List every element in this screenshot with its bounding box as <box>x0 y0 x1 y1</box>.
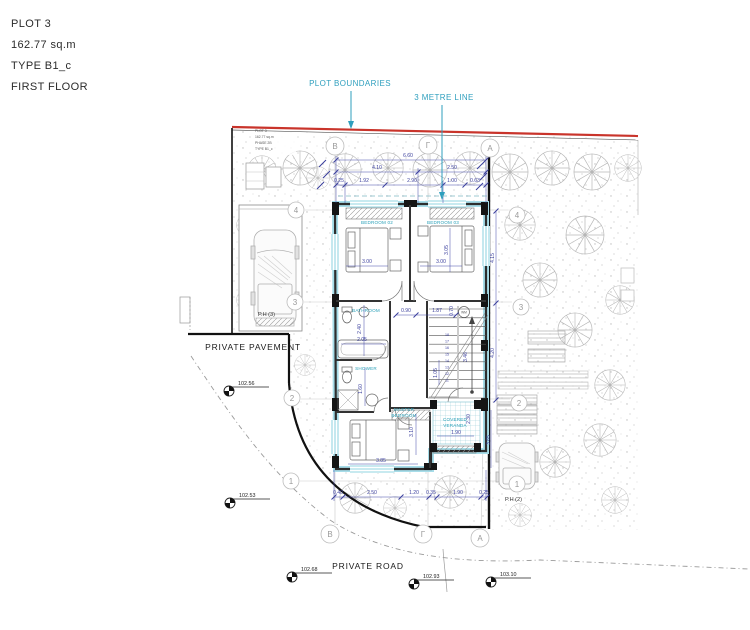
level-road-mid: 102.93 <box>423 574 440 580</box>
floor-plan-drawing: P.H (3) PLOT 3 162.77 sq.m PHASE 2B TYPE… <box>0 0 750 630</box>
svg-text:1.20: 1.20 <box>409 490 419 496</box>
svg-text:B: B <box>327 530 332 539</box>
svg-text:PLOT BOUNDARIES: PLOT BOUNDARIES <box>309 79 391 88</box>
master-bedroom-label-line1: MASTER <box>394 407 415 412</box>
veranda-label-line1: COVERED <box>443 417 468 422</box>
bedroom02-label: BEDROOM 02 <box>361 220 393 225</box>
svg-text:1.90: 1.90 <box>453 490 463 496</box>
parking-bay-left: P.H (3) <box>239 205 302 331</box>
svg-text:3.46: 3.46 <box>463 352 469 362</box>
bathroom-label: BATHROOM <box>352 308 380 313</box>
svg-text:A: A <box>477 534 483 543</box>
svg-text:2.30: 2.30 <box>466 414 472 424</box>
svg-text:6.60: 6.60 <box>403 153 413 159</box>
svg-text:0.40: 0.40 <box>333 490 343 496</box>
svg-text:2.50: 2.50 <box>367 490 377 496</box>
svg-text:1: 1 <box>515 480 520 489</box>
svg-text:11: 11 <box>445 379 449 383</box>
svg-text:2: 2 <box>290 394 295 403</box>
svg-text:3.00: 3.00 <box>436 259 446 265</box>
svg-text:0.25: 0.25 <box>479 490 489 496</box>
svg-text:1.60: 1.60 <box>358 384 364 394</box>
floor-plan-page: P.H (3) PLOT 3 162.77 sq.m PHASE 2B TYPE… <box>0 0 750 630</box>
svg-text:12: 12 <box>445 372 449 376</box>
svg-text:4.15: 4.15 <box>490 253 496 263</box>
svg-text:0.63: 0.63 <box>470 178 480 184</box>
title-block: PLOT 3 162.77 sq.m TYPE B1_c FIRST FLOOR <box>11 18 88 93</box>
svg-text:1.05: 1.05 <box>433 368 439 378</box>
svg-text:1.00: 1.00 <box>447 178 457 184</box>
level-road-right: 103.10 <box>500 572 517 578</box>
plot-tag-line2: 162.77 sq.m <box>255 135 274 139</box>
svg-text:3.65: 3.65 <box>486 435 492 445</box>
title-type: TYPE B1_c <box>11 60 72 72</box>
callout-plot-boundaries: PLOT BOUNDARIES <box>309 79 391 129</box>
svg-text:1.87: 1.87 <box>432 308 442 314</box>
svg-text:14: 14 <box>445 359 449 363</box>
svg-text:1.90: 1.90 <box>451 430 461 436</box>
svg-text:4: 4 <box>294 206 299 215</box>
utility-boxes <box>246 163 281 189</box>
level-road-left: 102.68 <box>301 567 318 573</box>
svg-text:3.85: 3.85 <box>376 458 386 464</box>
plot-tag-line4: TYPE B1_c <box>255 147 273 151</box>
veranda-label-line2: VERANDA <box>443 423 467 428</box>
svg-text:17: 17 <box>445 340 449 344</box>
washing-machine-label: WM <box>461 311 467 315</box>
svg-text:3 METRE LINE: 3 METRE LINE <box>414 93 473 102</box>
svg-text:3: 3 <box>519 303 524 312</box>
level-pavement-lower: 102.53 <box>239 493 256 499</box>
svg-text:18: 18 <box>445 333 449 337</box>
svg-text:3: 3 <box>293 298 298 307</box>
svg-text:1.92: 1.92 <box>359 178 369 184</box>
master-bedroom-label-line2: BEDROOM <box>391 413 416 418</box>
svg-text:A: A <box>487 144 493 153</box>
parking-house-3-label: P.H (3) <box>258 312 275 318</box>
parking-house-2-label: P.H (2) <box>505 497 522 503</box>
svg-text:Γ: Γ <box>426 141 431 150</box>
level-pavement-upper: 102.56 <box>238 381 255 387</box>
title-floor: FIRST FLOOR <box>11 81 88 93</box>
private-road-label: PRIVATE ROAD <box>332 561 404 571</box>
svg-text:15: 15 <box>445 353 449 357</box>
title-area: 162.77 sq.m <box>11 39 76 51</box>
svg-text:4.20: 4.20 <box>490 348 496 358</box>
svg-text:0.35: 0.35 <box>426 490 436 496</box>
svg-text:0.25: 0.25 <box>334 178 344 184</box>
svg-text:3.05: 3.05 <box>444 245 450 255</box>
svg-text:1: 1 <box>289 477 294 486</box>
road-divider-line <box>443 549 447 592</box>
shower-label: SHOWER <box>355 366 377 371</box>
private-pavement-label: PRIVATE PAVEMENT <box>205 342 301 352</box>
svg-text:4: 4 <box>515 211 520 220</box>
svg-text:B: B <box>332 142 337 151</box>
title-plot: PLOT 3 <box>11 18 51 30</box>
bedroom03-label: BEDROOM 03 <box>427 220 459 225</box>
svg-text:2.05: 2.05 <box>357 337 367 343</box>
svg-text:Γ: Γ <box>421 530 426 539</box>
svg-text:2.90: 2.90 <box>407 178 417 184</box>
svg-text:13: 13 <box>445 366 449 370</box>
svg-text:0.90: 0.90 <box>401 308 411 314</box>
svg-text:2.40: 2.40 <box>357 324 363 334</box>
svg-text:0.70: 0.70 <box>449 306 455 316</box>
svg-text:2.50: 2.50 <box>447 165 457 171</box>
svg-text:4.10: 4.10 <box>372 165 382 171</box>
svg-text:2: 2 <box>517 399 522 408</box>
svg-text:3.00: 3.00 <box>362 259 372 265</box>
svg-text:3.10: 3.10 <box>409 427 415 437</box>
plot-tag-line3: PHASE 2B <box>255 141 272 145</box>
svg-text:16: 16 <box>445 346 449 350</box>
